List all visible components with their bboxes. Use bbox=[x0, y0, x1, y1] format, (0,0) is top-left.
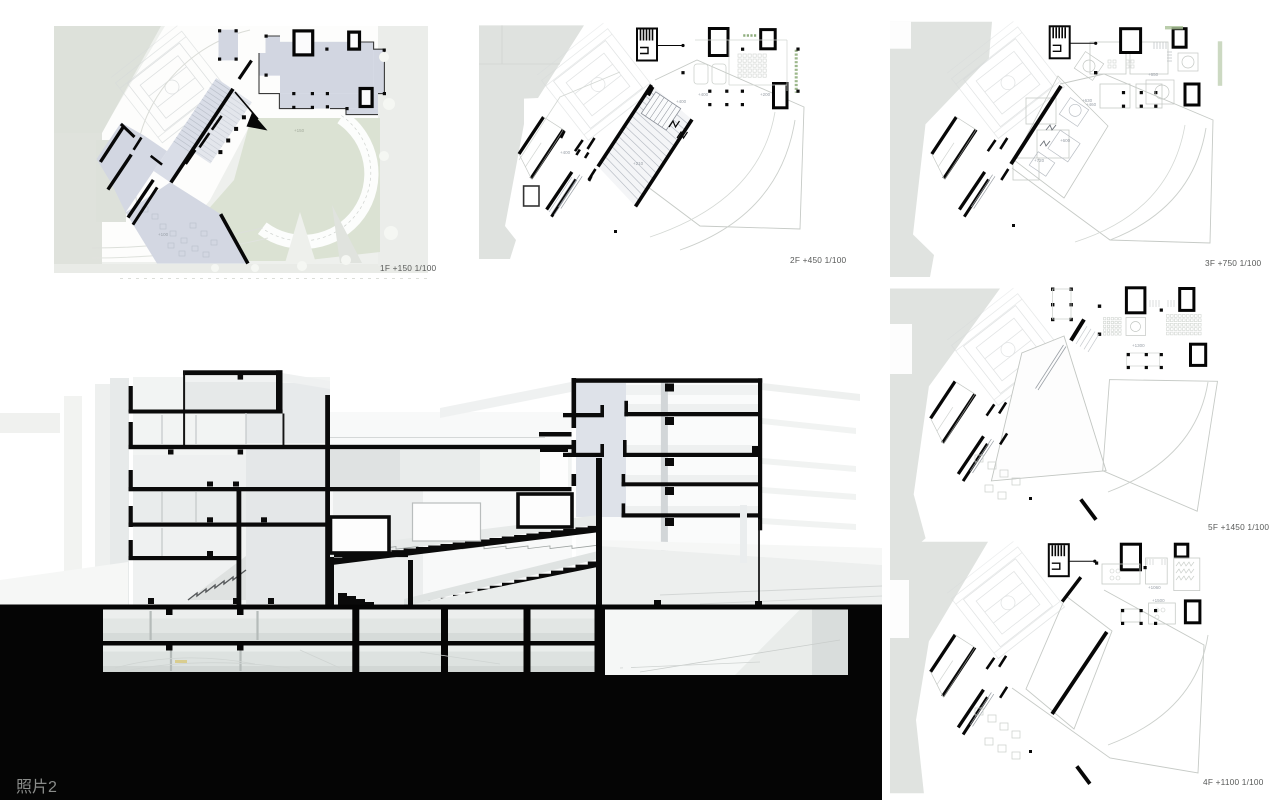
svg-text:+400: +400 bbox=[560, 150, 571, 155]
svg-text:+720: +720 bbox=[1034, 158, 1045, 163]
svg-text:+400: +400 bbox=[698, 92, 709, 97]
svg-text:1F +150 1/100: 1F +150 1/100 bbox=[380, 263, 437, 273]
svg-text:+630: +630 bbox=[1082, 98, 1093, 103]
svg-text:+1300: +1300 bbox=[1132, 343, 1145, 348]
svg-text:+600: +600 bbox=[1060, 138, 1071, 143]
svg-text:+650: +650 bbox=[1148, 72, 1159, 77]
svg-text:照片2: 照片2 bbox=[16, 778, 57, 796]
svg-text:+210: +210 bbox=[633, 161, 644, 166]
svg-text:+150: +150 bbox=[294, 128, 305, 133]
svg-text:+100: +100 bbox=[158, 232, 169, 237]
svg-text:2F +450 1/100: 2F +450 1/100 bbox=[790, 255, 847, 265]
svg-text:+1060: +1060 bbox=[1148, 585, 1161, 590]
svg-text:+400: +400 bbox=[676, 99, 687, 104]
svg-text:5F +1450 1/100: 5F +1450 1/100 bbox=[1208, 522, 1269, 532]
svg-text:3F +750 1/100: 3F +750 1/100 bbox=[1205, 258, 1262, 268]
svg-text:4F +1100 1/100: 4F +1100 1/100 bbox=[1203, 777, 1264, 787]
svg-text:+1500: +1500 bbox=[1152, 598, 1165, 603]
svg-text:+200: +200 bbox=[760, 92, 771, 97]
